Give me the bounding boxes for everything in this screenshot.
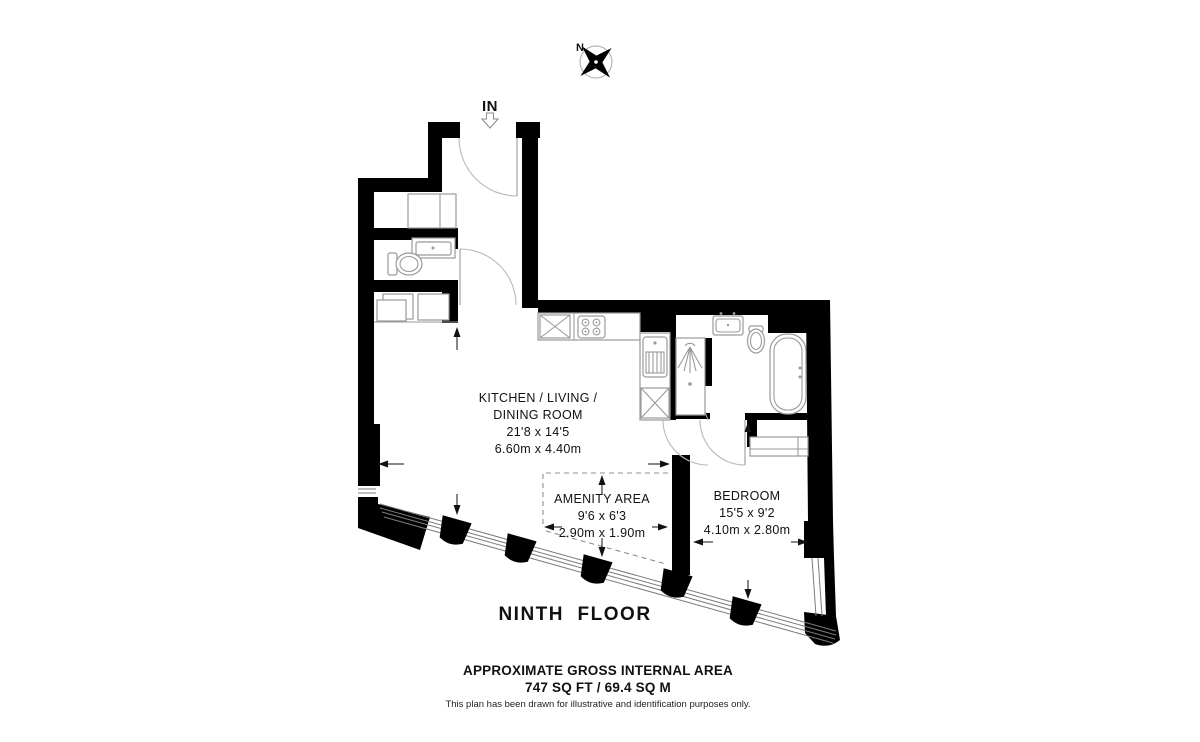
footer-area-value: 747 SQ FT / 69.4 SQ M [525, 680, 671, 695]
utility-appliances [374, 294, 458, 322]
amenity-label: AMENITY AREA [554, 492, 650, 506]
entrance-arrow-icon [482, 113, 498, 128]
wc-toilet-icon [388, 253, 422, 275]
floor-title: NINTH FLOOR [498, 604, 651, 625]
bedroom-dim-imperial: 15'5 x 9'2 [719, 506, 775, 520]
floorplan-page: N IN [0, 0, 1200, 742]
kitchen-dim-imperial: 21'8 x 14'5 [507, 425, 570, 439]
right-wall-window [812, 558, 822, 616]
bedroom-dim-metric: 4.10m x 2.80m [704, 523, 791, 537]
compass-north-label: N [576, 42, 584, 54]
bedroom-door [700, 420, 745, 465]
bedroom-label: BEDROOM [714, 489, 781, 503]
hob-icon [578, 316, 605, 338]
bathroom-sink [713, 312, 743, 335]
footer: APPROXIMATE GROSS INTERNAL AREA 747 SQ F… [445, 663, 750, 710]
bathtub-icon [770, 334, 806, 414]
compass-rose: N [566, 32, 625, 91]
floor-plan-svg: N IN [0, 0, 1200, 742]
shower [676, 338, 705, 415]
wc-door [460, 249, 516, 305]
left-wall-window [358, 489, 376, 493]
hall-closet [408, 194, 456, 228]
kitchen-label-line2: DINING ROOM [493, 408, 582, 422]
kitchen-sink-icon [643, 337, 667, 377]
amenity-dim-imperial: 9'6 x 6'3 [578, 509, 626, 523]
wardrobe [750, 437, 808, 456]
amenity-dim-metric: 2.90m x 1.90m [559, 526, 646, 540]
footer-disclaimer: This plan has been drawn for illustrativ… [445, 699, 750, 710]
kitchen-label-line1: KITCHEN / LIVING / [479, 391, 598, 405]
bathroom-toilet-icon [748, 326, 765, 353]
entrance-door [459, 138, 517, 196]
wc-sink [412, 238, 455, 258]
footer-area-heading: APPROXIMATE GROSS INTERNAL AREA [463, 663, 733, 678]
kitchen-dim-metric: 6.60m x 4.40m [495, 442, 582, 456]
